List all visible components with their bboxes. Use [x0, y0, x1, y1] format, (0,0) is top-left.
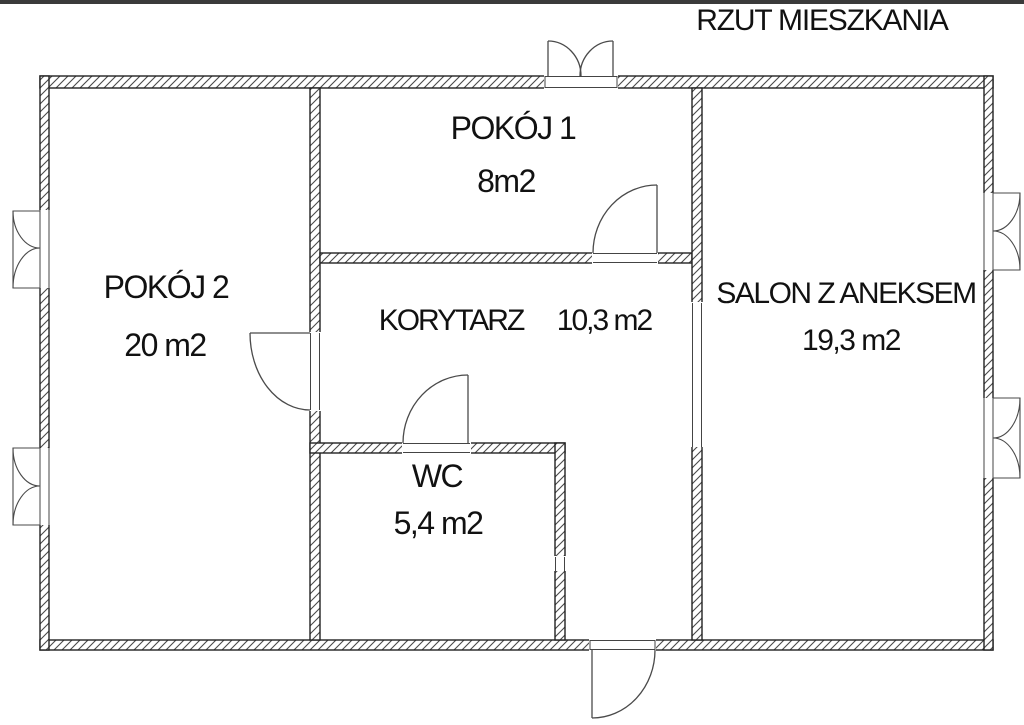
window-opening-left-2 [39, 448, 50, 525]
floor-plan-page: RZUT MIESZKANIA [0, 0, 1024, 725]
room-label-salon-area: 19,3 m2 [802, 326, 900, 356]
wc-wall-gap [554, 556, 566, 571]
wall-wc-right [555, 443, 565, 640]
window-opening-left-1 [39, 210, 50, 288]
outer-wall-right [984, 76, 993, 650]
entrance-door-opening [589, 639, 656, 651]
room-label-pokoj1-name: POKÓJ 1 [451, 112, 576, 144]
room-label-pokoj2-area: 20 m2 [124, 329, 205, 361]
pokoj1-door-opening [592, 252, 658, 264]
salon-passage-opening [691, 302, 703, 447]
outer-wall-left [40, 76, 49, 650]
outer-wall-top [40, 76, 993, 88]
room-label-salon-name: SALON Z ANEKSEM [716, 279, 975, 309]
room-label-korytarz-area: 10,3 m2 [557, 306, 651, 336]
window-opening-right-2 [983, 398, 994, 478]
room-label-pokoj1-area: 8m2 [477, 165, 535, 197]
room-label-wc-name: WC [412, 460, 462, 492]
wc-door-opening [402, 442, 471, 454]
room-label-korytarz-name: KORYTARZ [379, 306, 524, 336]
wc-door-icon [403, 375, 468, 443]
entrance-door-icon [592, 650, 655, 718]
pokoj2-door-opening [309, 332, 321, 411]
window-right-1-icon [993, 193, 1020, 270]
window-left-1-icon [13, 211, 40, 288]
balcony-double-door-icon [548, 41, 613, 76]
room-label-pokoj2-name: POKÓJ 2 [104, 271, 229, 303]
pokoj2-door-icon [250, 333, 310, 410]
room-label-wc-area: 5,4 m2 [394, 507, 483, 539]
outer-wall-bottom [40, 640, 993, 650]
window-right-2-icon [993, 398, 1020, 478]
wall-openings [39, 75, 994, 651]
window-left-2-icon [13, 448, 40, 525]
balcony-door-opening [544, 75, 618, 89]
window-opening-right-1 [983, 193, 994, 270]
pokoj1-door-icon [593, 185, 657, 253]
